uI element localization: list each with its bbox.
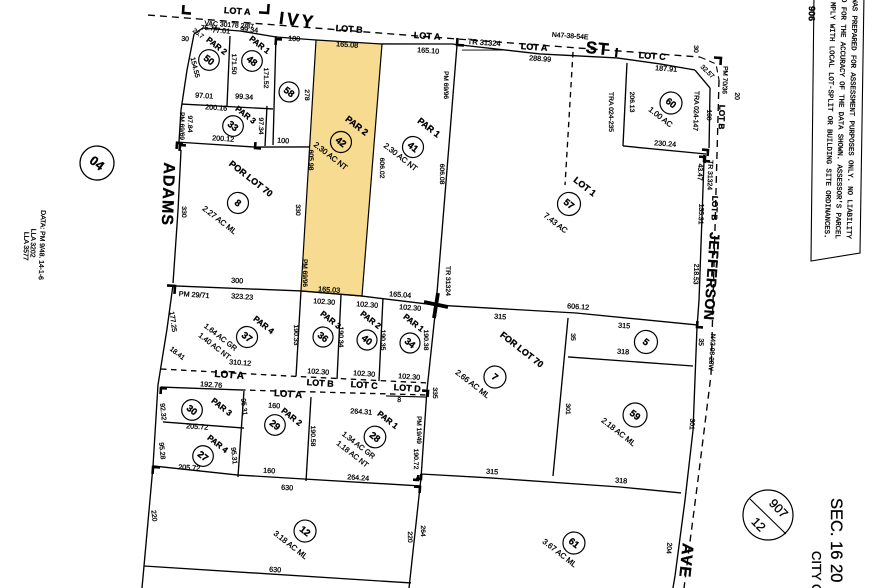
svg-text:165.04: 165.04 [389, 289, 412, 300]
svg-text:LOT D: LOT D [393, 382, 421, 394]
svg-text:606.12: 606.12 [567, 301, 590, 312]
svg-text:100: 100 [288, 34, 301, 44]
svg-text:205.72: 205.72 [186, 421, 209, 432]
svg-text:102.30: 102.30 [399, 302, 422, 313]
svg-text:20: 20 [733, 92, 740, 100]
svg-text:220: 220 [149, 510, 157, 522]
svg-text:300: 300 [231, 276, 244, 286]
svg-text:278: 278 [303, 89, 310, 101]
svg-text:LOT B: LOT B [306, 377, 334, 389]
svg-text:TRA 024-235: TRA 024-235 [607, 92, 614, 132]
svg-text:190.58: 190.58 [309, 426, 316, 447]
svg-text:97.34: 97.34 [257, 118, 264, 135]
svg-text:30: 30 [181, 36, 189, 44]
svg-text:165.03: 165.03 [318, 284, 341, 295]
svg-text:LOT B: LOT B [710, 196, 720, 221]
svg-text:190.33: 190.33 [292, 325, 299, 346]
svg-text:171.50: 171.50 [230, 54, 237, 75]
svg-text:160: 160 [263, 466, 276, 476]
svg-text:301: 301 [688, 418, 696, 430]
svg-text:190.35: 190.35 [379, 330, 386, 351]
svg-text:230.24: 230.24 [654, 138, 677, 149]
svg-text:LOT C: LOT C [638, 50, 666, 62]
svg-text:605.98: 605.98 [307, 150, 314, 171]
svg-text:TR 31324: TR 31324 [705, 160, 713, 190]
svg-text:99.34: 99.34 [235, 91, 254, 101]
svg-text:192.76: 192.76 [200, 379, 223, 390]
svg-text:630: 630 [269, 565, 282, 575]
svg-text:190.34: 190.34 [337, 327, 344, 348]
svg-text:100: 100 [277, 136, 290, 146]
svg-text:LOT B: LOT B [717, 105, 727, 130]
svg-text:PM 69/69: PM 69/69 [178, 112, 185, 140]
svg-text:206.13: 206.13 [628, 92, 635, 113]
svg-text:264.31: 264.31 [350, 406, 373, 417]
svg-text:165.08: 165.08 [336, 39, 359, 50]
svg-text:ST: ST [585, 38, 611, 59]
svg-text:606.08: 606.08 [438, 164, 445, 185]
svg-text:200.16: 200.16 [205, 102, 228, 113]
svg-text:97.84: 97.84 [186, 115, 193, 132]
svg-text:218.53: 218.53 [692, 264, 700, 285]
svg-text:264.24: 264.24 [347, 472, 370, 483]
svg-text:35: 35 [697, 338, 705, 346]
svg-text:PM 69/96: PM 69/96 [442, 71, 449, 99]
svg-text:77.01: 77.01 [212, 25, 231, 35]
svg-text:TRA 024-147: TRA 024-147 [691, 91, 699, 131]
svg-text:8: 8 [397, 397, 401, 404]
svg-text:LOT A: LOT A [414, 30, 442, 42]
svg-text:606.02: 606.02 [378, 158, 385, 179]
svg-text:LOT A: LOT A [274, 388, 303, 401]
svg-text:204: 204 [665, 542, 673, 554]
svg-text:30: 30 [692, 45, 699, 53]
svg-text:323.23: 323.23 [231, 291, 254, 302]
svg-text:PM 70/36: PM 70/36 [721, 66, 729, 94]
svg-text:315: 315 [618, 321, 631, 331]
svg-text:310.12: 310.12 [229, 357, 252, 368]
svg-text:190.72: 190.72 [412, 449, 419, 470]
svg-text:220: 220 [406, 531, 413, 543]
svg-text:315: 315 [486, 467, 499, 477]
svg-text:43.47: 43.47 [696, 163, 704, 180]
svg-text:330: 330 [180, 206, 187, 218]
svg-text:906: 906 [807, 6, 817, 21]
svg-text:102.30: 102.30 [353, 368, 376, 379]
svg-text:PM 19/49: PM 19/49 [415, 416, 422, 444]
svg-text:CITY C: CITY C [809, 551, 824, 588]
svg-text:200.12: 200.12 [212, 133, 235, 144]
svg-text:264: 264 [419, 525, 426, 537]
svg-text:AVE: AVE [675, 542, 696, 578]
svg-text:301: 301 [564, 403, 571, 415]
svg-text:335: 335 [431, 387, 438, 399]
svg-text:315: 315 [494, 312, 507, 322]
svg-text:102.30: 102.30 [356, 299, 379, 310]
svg-text:LOT C: LOT C [350, 379, 378, 391]
svg-text:ADAMS: ADAMS [158, 162, 177, 226]
svg-text:LOT A: LOT A [521, 41, 549, 53]
svg-text:LOT A: LOT A [224, 5, 252, 17]
svg-text:187.91: 187.91 [655, 63, 678, 74]
svg-text:165.10: 165.10 [417, 45, 440, 56]
svg-text:171.52: 171.52 [262, 68, 269, 89]
svg-text:102.30: 102.30 [313, 296, 336, 307]
svg-text:160: 160 [268, 401, 281, 411]
svg-text:LLA 3577: LLA 3577 [22, 232, 30, 261]
svg-text:102.30: 102.30 [398, 371, 421, 382]
svg-text:97.01: 97.01 [195, 90, 214, 100]
svg-text:160: 160 [705, 109, 712, 120]
svg-text:288.99: 288.99 [529, 53, 552, 64]
svg-text:99.34: 99.34 [240, 24, 259, 34]
svg-text:SEC. 16 20: SEC. 16 20 [827, 498, 845, 582]
svg-text:LOT B: LOT B [335, 23, 363, 35]
svg-text:PM 69/96: PM 69/96 [301, 259, 308, 287]
svg-text:190.38: 190.38 [422, 330, 429, 351]
svg-text:630: 630 [281, 483, 294, 493]
svg-text:135.31: 135.31 [697, 203, 705, 224]
svg-text:TR 31324: TR 31324 [444, 266, 451, 296]
svg-text:102.30: 102.30 [307, 366, 330, 377]
svg-text:318: 318 [617, 347, 630, 357]
svg-text:35: 35 [569, 333, 576, 341]
svg-text:318: 318 [615, 476, 628, 486]
svg-text:330: 330 [294, 204, 301, 216]
